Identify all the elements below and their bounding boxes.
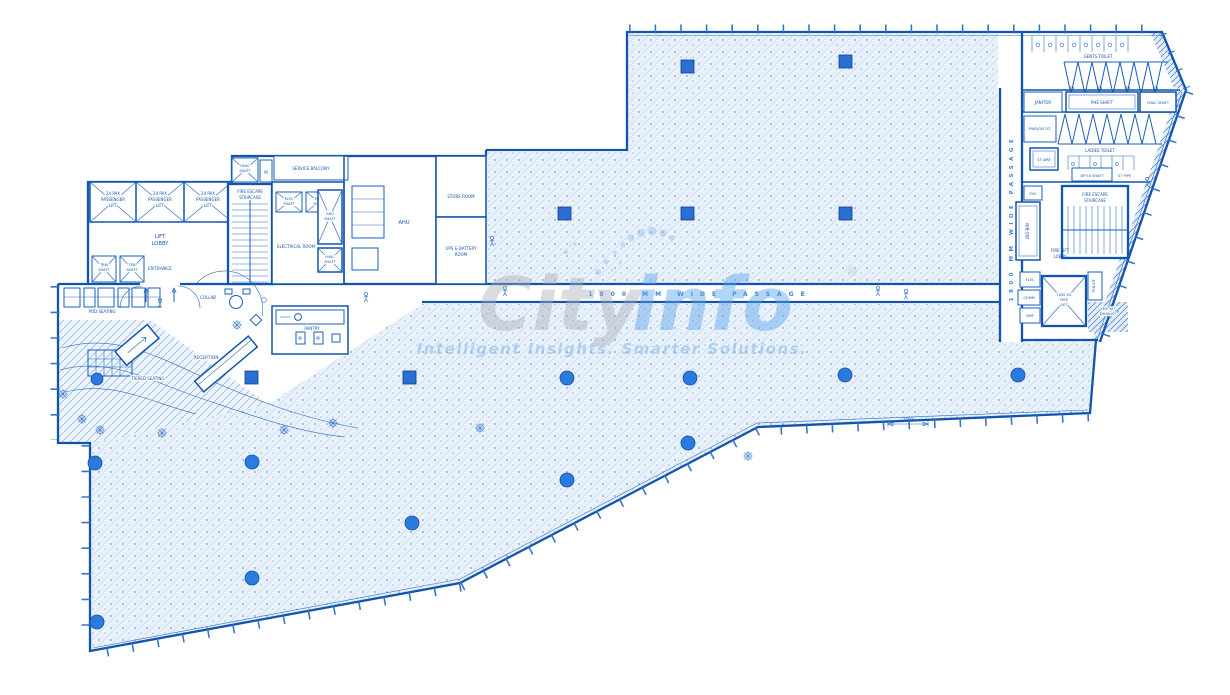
svg-text:PASSENGER: PASSENGER: [148, 197, 172, 202]
svg-text:1000 KG: 1000 KG: [1056, 293, 1071, 297]
m-box: M: [260, 160, 272, 182]
left-core: 24 PAX PASSENGER LIFT 24 PAX PASSENGER L…: [90, 156, 486, 308]
dp-ex-shaft: DP EX SHAFT ST PIPE: [1072, 168, 1131, 181]
elec-shaft-1: ELEC SHAFT: [276, 192, 302, 212]
gents-toilet: GENTS TOILET: [1032, 36, 1168, 94]
svg-text:JANITOR: JANITOR: [1034, 100, 1052, 105]
svg-text:24 PAX: 24 PAX: [201, 191, 215, 196]
svg-text:EMP: EMP: [1026, 314, 1033, 318]
tree-icon: [475, 423, 485, 433]
fire-escape-stair-left: FIRE ESCAPE STAIRCASE: [228, 184, 272, 284]
svg-text:ROOM: ROOM: [455, 252, 468, 257]
service-balcony: SERVICE BALCONY: [274, 156, 348, 180]
floor-plan-svg: 1800 MM WIDE PASSAGE 1800 MM WIDE PASSAG…: [0, 0, 1230, 695]
tree-icon: [279, 425, 289, 435]
st-pipe-label: ST PIPE: [1118, 174, 1131, 178]
bio-bin: BIO-BIN: [1016, 202, 1040, 260]
svg-text:ELEC: ELEC: [1026, 278, 1035, 282]
elec-box: ELEC: [1020, 272, 1040, 287]
svg-text:ST AIRE: ST AIRE: [1037, 158, 1051, 162]
svg-text:ENTRANCE: ENTRANCE: [148, 266, 172, 272]
store-room: STORE ROOM: [436, 156, 486, 217]
fire-escape-stair-right: FIRE ESCAPE STAIRCASE: [1062, 186, 1128, 258]
tree-icon: [232, 320, 242, 330]
watermark-registered: ®: [846, 265, 858, 279]
svg-text:HVAC: HVAC: [325, 255, 335, 259]
svg-text:LOBBY: LOBBY: [1054, 254, 1068, 259]
svg-text:TEN. KIT: TEN. KIT: [1100, 307, 1117, 311]
svg-text:PASSENGER: PASSENGER: [101, 197, 125, 202]
svg-text:ELEC: ELEC: [285, 197, 294, 201]
svg-text:24 PAX: 24 PAX: [153, 191, 167, 196]
ahu-shaft: AHU SHAFT: [318, 190, 342, 244]
pantry: PANTRY: [272, 306, 348, 354]
tree-icon: [157, 428, 167, 438]
tree-icon: [58, 389, 68, 399]
svg-text:COLLAB: COLLAB: [200, 295, 216, 300]
svg-text:FIRE: FIRE: [1060, 298, 1068, 302]
tree-icon: [95, 425, 105, 435]
svg-text:TRW: TRW: [99, 263, 108, 267]
svg-text:AHU: AHU: [326, 212, 334, 216]
svg-text:STORE ROOM: STORE ROOM: [447, 194, 475, 199]
svg-text:PHE SHAFT: PHE SHAFT: [1091, 100, 1114, 105]
svg-text:POD SEATING: POD SEATING: [88, 309, 115, 314]
svg-text:DP EX SHAFT: DP EX SHAFT: [1081, 174, 1105, 178]
electrical-block: ELEC SHAFT ELEC SHAFT ELECTRICAL ROOM AH…: [272, 182, 344, 284]
janitor: JANITOR: [1024, 92, 1062, 112]
svg-text:LIFT: LIFT: [109, 203, 118, 208]
floor-plan-page: 1800 MM WIDE PASSAGE 1800 MM WIDE PASSAG…: [0, 0, 1230, 695]
svg-text:LIFT: LIFT: [155, 234, 166, 240]
svg-text:TIERED SEATING: TIERED SEATING: [130, 376, 164, 381]
fire-lift: 1000 KG FIRE LIFT: [1042, 276, 1086, 326]
svg-text:COMM: COMM: [1023, 296, 1034, 300]
phe-shaft: PHE SHAFT: [1066, 92, 1138, 112]
svg-text:FHC: FHC: [1029, 192, 1037, 196]
svg-text:FIRE ESCAPE: FIRE ESCAPE: [237, 189, 263, 194]
svg-text:PASSENGER: PASSENGER: [196, 197, 220, 202]
tree-icon: [77, 414, 87, 424]
svg-text:PANTRY: PANTRY: [304, 326, 320, 331]
ten-shaft: TEN SHAFT: [120, 256, 144, 282]
svg-text:LIFT: LIFT: [1060, 303, 1068, 307]
lift-lobby: LIFT LOBBY: [152, 234, 170, 247]
comm-box: COMM: [1018, 290, 1040, 305]
hvac-shaft-top: HVAC SHAFT: [232, 158, 258, 182]
svg-text:BIO-BIN: BIO-BIN: [1025, 223, 1030, 238]
person-icon: [364, 292, 368, 302]
svg-text:1500: 1500: [903, 417, 914, 422]
upper-office-hatch: [486, 34, 998, 282]
ten-kit-box: TEN KIT: [1088, 272, 1102, 300]
ten-kit-exhaust: TEN. KIT EXHAUST: [1100, 307, 1117, 316]
svg-text:SHAFT: SHAFT: [283, 202, 295, 206]
svg-text:SHAFT: SHAFT: [98, 268, 110, 272]
st-aire-box: ST AIRE: [1030, 148, 1058, 170]
watermark-brand-gray: City: [478, 262, 644, 348]
passage-label-vertical: 1800 MM WIDE PASSAGE: [1009, 135, 1015, 301]
fhc-box: FHC: [1024, 186, 1042, 200]
hvac-shaft-right: HVAC SHAFT: [1140, 92, 1176, 112]
svg-text:LOBBY: LOBBY: [152, 241, 170, 247]
svg-text:EXHAUST: EXHAUST: [1100, 312, 1117, 316]
svg-text:UPS & BATTERY: UPS & BATTERY: [445, 246, 477, 251]
svg-text:SERVICE BALCONY: SERVICE BALCONY: [292, 166, 330, 171]
electrical-room-label: ELECTRICAL ROOM: [277, 244, 316, 249]
top-right-band-hatch: [1150, 32, 1186, 90]
hvac-shaft-2: HVAC SHAFT: [318, 248, 342, 272]
svg-text:STAIRCASE: STAIRCASE: [239, 195, 261, 200]
passenger-lifts: 24 PAX PASSENGER LIFT 24 PAX PASSENGER L…: [90, 182, 232, 222]
svg-text:TEN KIT: TEN KIT: [1092, 278, 1096, 293]
ahu-room: AHU: [344, 156, 436, 284]
svg-text:SHAFT: SHAFT: [324, 260, 336, 264]
svg-text:24 PAX: 24 PAX: [106, 191, 120, 196]
svg-text:LADIES TOILET: LADIES TOILET: [1085, 148, 1115, 153]
svg-text:GENTS TOILET: GENTS TOILET: [1084, 54, 1113, 59]
watermark-brand-blue: info: [632, 262, 793, 348]
svg-text:LIFT: LIFT: [156, 203, 165, 208]
ladies-toilet: PWD/GN TLT. LADIES TOILET ST AIRE: [1024, 114, 1162, 170]
svg-text:M: M: [264, 170, 268, 175]
svg-text:LIFT: LIFT: [204, 203, 213, 208]
svg-text:FIRE LIFT: FIRE LIFT: [1051, 248, 1070, 253]
svg-text:TEN: TEN: [128, 263, 136, 267]
ahu-label: AHU: [398, 220, 409, 226]
tree-icon: [743, 451, 753, 461]
watermark-tagline: Intelligent Insights. Smarter Solutions.: [417, 340, 808, 358]
tree-icon: [328, 418, 338, 428]
trw-shaft: TRW SHAFT: [92, 256, 116, 282]
svg-text:SHAFT: SHAFT: [324, 217, 336, 221]
svg-text:SHAFT: SHAFT: [239, 169, 251, 173]
emp-box: EMP: [1020, 308, 1040, 323]
svg-text:HVAC: HVAC: [240, 164, 250, 168]
svg-text:SHAFT: SHAFT: [126, 268, 138, 272]
svg-text:PWD/GN TLT.: PWD/GN TLT.: [1029, 127, 1051, 131]
svg-text:STAIRCASE: STAIRCASE: [1084, 198, 1106, 203]
svg-text:HVAC SHAFT: HVAC SHAFT: [1147, 101, 1170, 105]
svg-text:RECEPTION: RECEPTION: [193, 355, 218, 361]
svg-text:FIRE ESCAPE: FIRE ESCAPE: [1082, 192, 1108, 197]
